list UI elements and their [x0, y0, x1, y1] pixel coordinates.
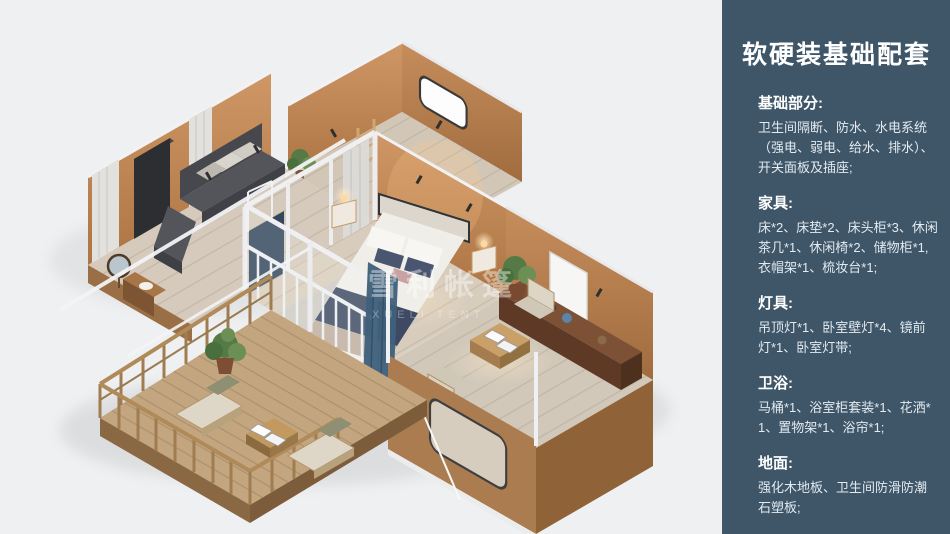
section-heading: 基础部分: [758, 94, 938, 114]
section-heading: 灯具: [758, 294, 938, 314]
section-heading: 卫浴: [758, 374, 938, 394]
section-body: 卫生间隔断、防水、水电系统（强电、弱电、给水、排水）、开关面板及插座; [758, 118, 938, 178]
watermark-en: XUELI TENT [372, 309, 485, 321]
watermark-cn: 雪利帐篷 [368, 269, 520, 302]
section-body: 马桶*1、浴室柜套装*1、花洒*1、置物架*1、浴帘*1; [758, 398, 938, 438]
section-body: 强化木地板、卫生间防滑防潮石塑板; [758, 478, 938, 518]
spec-section-flooring: 地面: 强化木地板、卫生间防滑防潮石塑板; [758, 454, 938, 518]
panel-title: 软硬装基础配套 [742, 40, 950, 70]
spec-panel: 软硬装基础配套 基础部分: 卫生间隔断、防水、水电系统（强电、弱电、给水、排水）… [722, 0, 950, 534]
section-body: 吊顶灯*1、卧室壁灯*4、镜前灯*1、卧室灯带; [758, 318, 938, 358]
section-heading: 家具: [758, 194, 938, 214]
floorplan-render: 雪利帐篷 XUELI TENT [0, 0, 722, 534]
isometric-cabin-illustration: 雪利帐篷 XUELI TENT [0, 0, 722, 534]
spec-section-basics: 基础部分: 卫生间隔断、防水、水电系统（强电、弱电、给水、排水）、开关面板及插座… [758, 94, 938, 178]
spec-section-furniture: 家具: 床*2、床垫*2、床头柜*3、休闲茶几*1、休闲椅*2、储物柜*1,衣帽… [758, 194, 938, 278]
nightstand [472, 232, 496, 274]
spec-section-bathroom: 卫浴: 马桶*1、浴室柜套装*1、花洒*1、置物架*1、浴帘*1; [758, 374, 938, 438]
nightstand [332, 186, 356, 228]
section-heading: 地面: [758, 454, 938, 474]
section-body: 床*2、床垫*2、床头柜*3、休闲茶几*1、休闲椅*2、储物柜*1,衣帽架*1、… [758, 218, 938, 278]
spec-section-lighting: 灯具: 吊顶灯*1、卧室壁灯*4、镜前灯*1、卧室灯带; [758, 294, 938, 358]
